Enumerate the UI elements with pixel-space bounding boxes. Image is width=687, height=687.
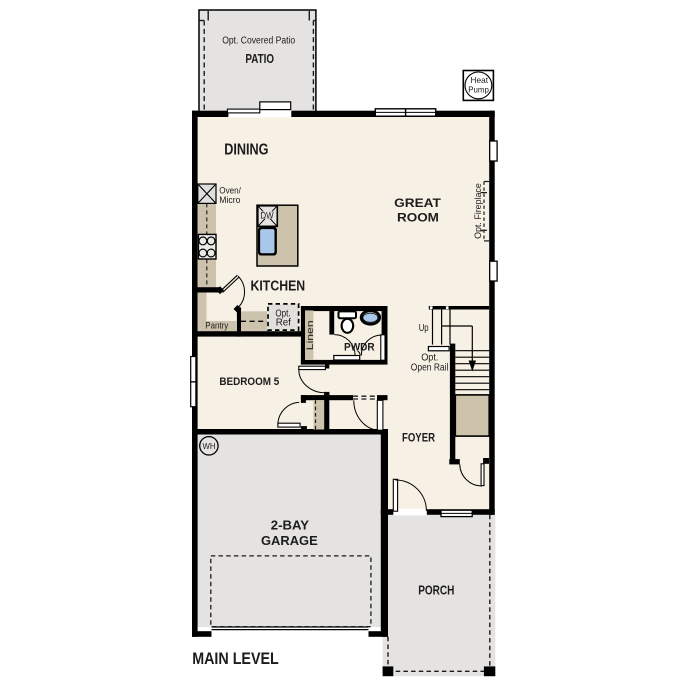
- svg-text:PWDR: PWDR: [344, 342, 375, 354]
- svg-text:Pantry: Pantry: [205, 321, 228, 331]
- svg-text:DINING: DINING: [224, 141, 268, 158]
- svg-text:ROOM: ROOM: [397, 211, 439, 225]
- svg-text:GREAT: GREAT: [394, 196, 441, 210]
- svg-text:2-BAY: 2-BAY: [271, 518, 310, 532]
- svg-text:PORCH: PORCH: [418, 584, 454, 598]
- svg-text:Linen: Linen: [305, 320, 315, 350]
- svg-text:BEDROOM 5: BEDROOM 5: [219, 376, 279, 388]
- svg-text:FOYER: FOYER: [402, 432, 436, 444]
- svg-text:DW: DW: [260, 211, 274, 221]
- svg-text:Micro: Micro: [219, 195, 240, 205]
- svg-text:WH: WH: [203, 442, 216, 451]
- svg-text:MAIN LEVEL: MAIN LEVEL: [192, 649, 279, 668]
- svg-text:PATIO: PATIO: [245, 51, 274, 66]
- svg-text:Opt. Covered Patio: Opt. Covered Patio: [222, 36, 295, 47]
- svg-text:Up: Up: [419, 322, 429, 334]
- svg-text:Opt. Fireplace: Opt. Fireplace: [473, 183, 483, 239]
- svg-text:KITCHEN: KITCHEN: [251, 279, 306, 295]
- svg-text:Ref: Ref: [276, 317, 291, 328]
- svg-text:Pump: Pump: [468, 85, 489, 95]
- svg-text:Open Rail: Open Rail: [411, 362, 449, 373]
- svg-text:Heat: Heat: [471, 75, 489, 85]
- svg-text:GARAGE: GARAGE: [261, 534, 318, 548]
